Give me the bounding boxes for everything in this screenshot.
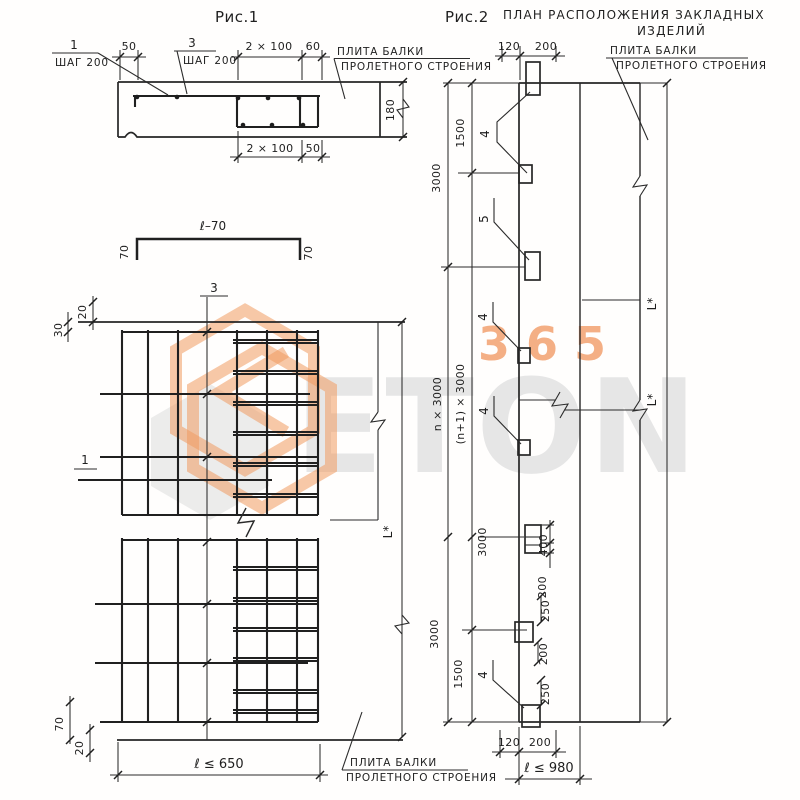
mesh-break-mark xyxy=(238,508,254,537)
fig1-title: Рис.1 xyxy=(215,8,259,26)
item5-leader xyxy=(494,198,529,260)
fig1-pos1-label: 1 xyxy=(70,38,78,52)
plan-slab-label-line1: ПЛИТА БАЛКИ xyxy=(350,757,437,769)
fig2-length-dim: L* L* xyxy=(645,79,671,726)
fig2-subtitle-line2: ИЗДЕЛИЙ xyxy=(637,23,706,38)
plan-dim-length: ℓ ≤ 650 xyxy=(193,757,243,772)
channel-shape xyxy=(137,239,300,260)
fig1-dim-50: 50 xyxy=(122,40,137,53)
fig1-pos1-step: ШАГ 200 xyxy=(55,57,109,69)
fig2-title: Рис.2 xyxy=(445,8,489,26)
fig1-slab-label-line2: ПРОЛЕТНОГО СТРОЕНИЯ xyxy=(341,61,492,73)
fig2-dim-L-lower: L* xyxy=(645,394,659,407)
fig2-dim-length: ℓ ≤ 980 xyxy=(523,761,573,776)
fig2-dim-3000-b: 3000 xyxy=(428,619,441,649)
fig2-dim-400: 400 xyxy=(537,534,550,556)
section-rebar xyxy=(133,95,320,128)
scanned-drawing-page: ETON 365 Рис.1 1 ШАГ 200 50 3 ШАГ 200 2 … xyxy=(0,0,800,800)
fig2-dim-250-a: 250 xyxy=(539,600,552,622)
section-bottom-edge xyxy=(118,133,407,138)
fig2-dim-200-top: 200 xyxy=(535,40,557,53)
plan-dim-20-bottom: 20 xyxy=(73,741,86,756)
fig2-dim-3000-c: 3000 xyxy=(476,527,489,557)
channel-leg-right-70: 70 xyxy=(302,246,315,261)
item4b-label: 4 xyxy=(476,313,490,321)
fig2-dim-120-top: 120 xyxy=(498,40,520,53)
fig1-pos1-leader xyxy=(98,53,168,95)
embedded-item-6 xyxy=(515,622,533,642)
fig1-dim-180: 180 xyxy=(384,99,397,121)
fig2-dim-L-upper: L* xyxy=(645,298,659,311)
fig2-dim-120-bottom: 120 xyxy=(498,736,520,749)
embedded-item-3 xyxy=(525,252,540,280)
plan-dim-70-bottom: 70 xyxy=(53,717,66,732)
fig1-dim-60: 60 xyxy=(306,40,321,53)
item5-label: 5 xyxy=(477,215,491,223)
embedded-item-top xyxy=(526,62,540,95)
watermark: ETON 365 xyxy=(151,310,699,520)
fig2-dim-200-b: 200 xyxy=(537,643,550,665)
plan-dim-30-top: 30 xyxy=(52,323,65,338)
fig2-dim-n-x-3000: n × 3000 xyxy=(431,377,444,431)
fig2-dim-n1-x-3000: (n+1) × 3000 xyxy=(454,364,467,445)
plan-dim-20-top: 20 xyxy=(76,305,89,320)
fig2-dim-200-bottom: 200 xyxy=(529,736,551,749)
fig2-outer-chain: 3000 n × 3000 3000 xyxy=(428,79,452,726)
channel-leg-left-70: 70 xyxy=(118,245,131,260)
fig1-dim-50-bottom: 50 xyxy=(306,142,321,155)
item4a-leader xyxy=(497,92,530,173)
channel-length-label: ℓ–70 xyxy=(199,219,226,233)
fig1-channel-detail: ℓ–70 70 70 xyxy=(118,219,315,260)
fig2-slab-label-line1: ПЛИТА БАЛКИ xyxy=(610,45,697,57)
item4d-label: 4 xyxy=(476,671,490,679)
fig1-dim-2x100: 2 × 100 xyxy=(245,40,292,53)
fig1-pos3-label: 3 xyxy=(188,36,196,50)
item4a-label: 4 xyxy=(478,130,492,138)
fig2-slab-label-line2: ПРОЛЕТНОГО СТРОЕНИЯ xyxy=(616,60,767,72)
fig1-dim-2x100-bottom: 2 × 100 xyxy=(246,142,293,155)
plan-dim-L: L* xyxy=(381,526,395,539)
plan-pos3-label: 3 xyxy=(210,281,218,295)
fig1-pos3-step: ШАГ 200 xyxy=(183,55,237,67)
watermark-number: 365 xyxy=(478,317,622,371)
fig2-dim-250-b: 250 xyxy=(539,683,552,705)
fig2-dim-1500-a: 1500 xyxy=(454,118,467,148)
embedded-item-2 xyxy=(519,165,532,183)
fig2-dim-1500-b: 1500 xyxy=(452,659,465,689)
fig1-section: Рис.1 1 ШАГ 200 50 3 ШАГ 200 2 × 100 60 … xyxy=(52,8,492,163)
fig1-slab-label-line1: ПЛИТА БАЛКИ xyxy=(337,46,424,58)
fig2-subtitle-line1: ПЛАН РАСПОЛОЖЕНИЯ ЗАКЛАДНЫХ xyxy=(503,8,765,22)
fig2-dim-3000-a: 3000 xyxy=(430,163,443,193)
plan-pos1-label: 1 xyxy=(81,453,89,467)
item4c-label: 4 xyxy=(477,407,491,415)
plan-slab-label-line2: ПРОЛЕТНОГО СТРОЕНИЯ xyxy=(346,772,497,784)
watermark-word: ETON xyxy=(295,351,700,503)
drawing-canvas: ETON 365 Рис.1 1 ШАГ 200 50 3 ШАГ 200 2 … xyxy=(0,0,800,800)
